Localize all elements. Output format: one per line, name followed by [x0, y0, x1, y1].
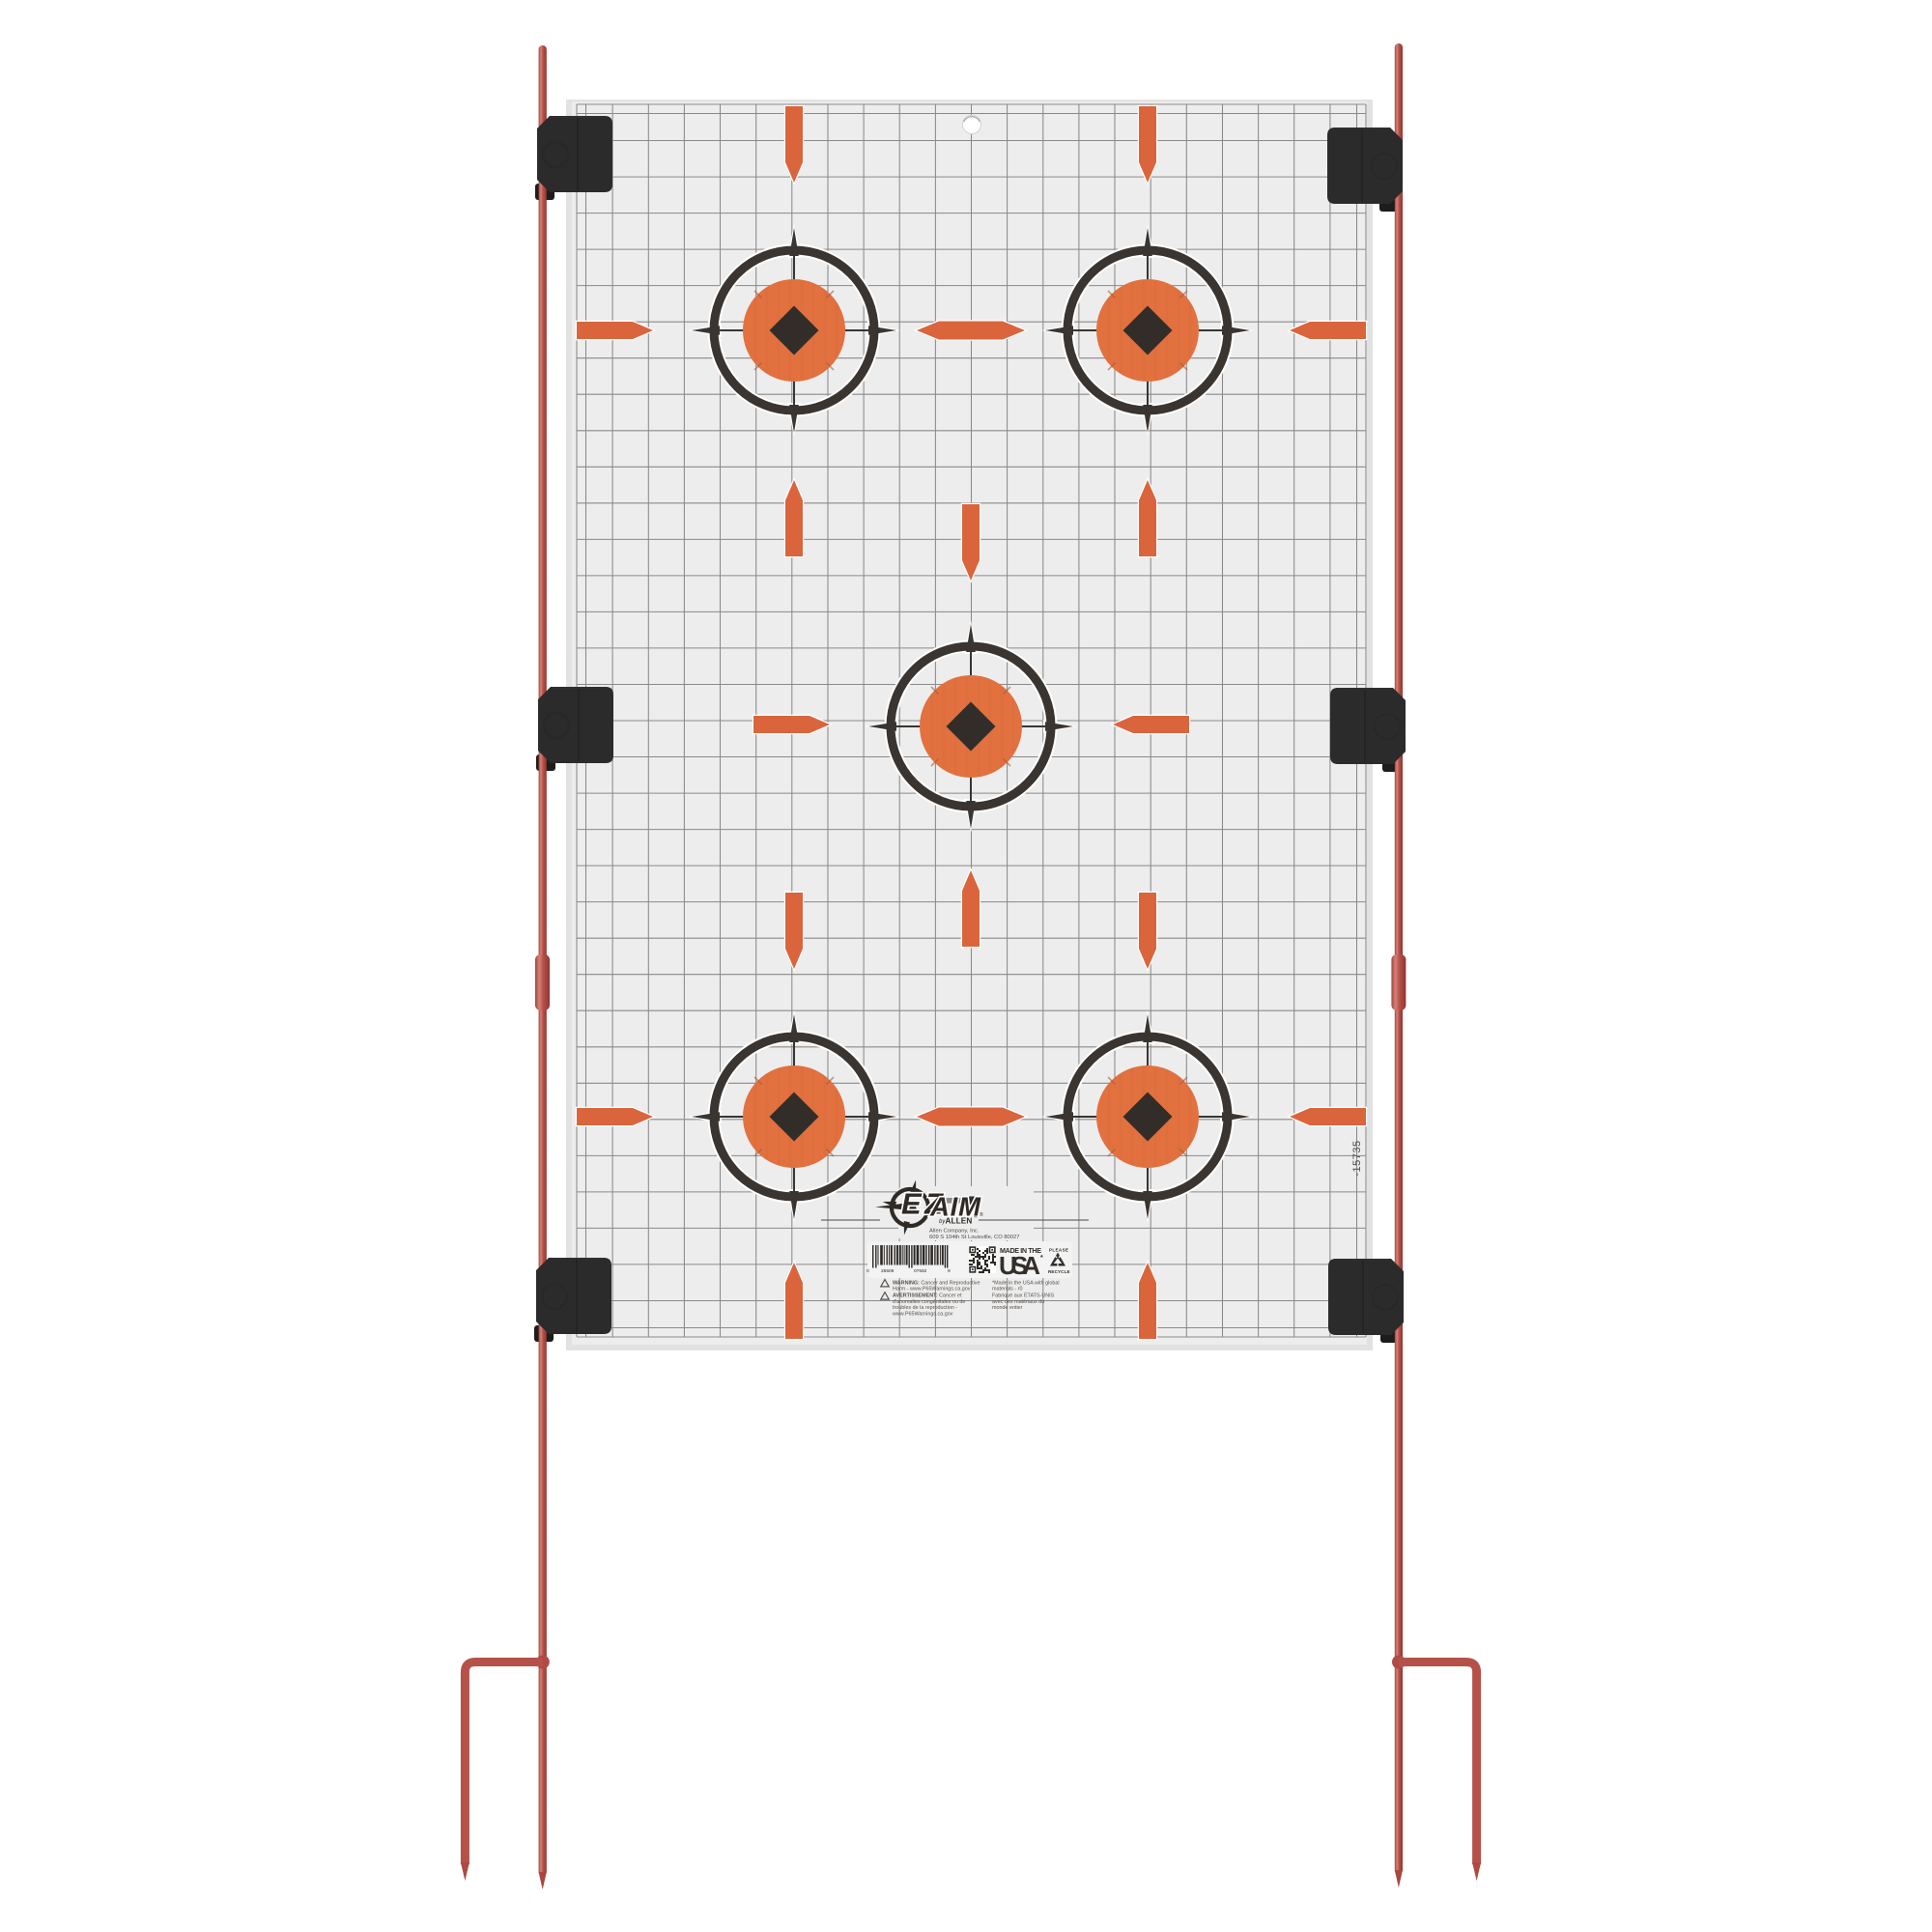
- svg-text:07592: 07592: [914, 1268, 927, 1274]
- svg-text:WARNING: Cancer and Reproducti: WARNING: Cancer and Reproductive: [893, 1281, 980, 1287]
- svg-text:-15735: -15735: [1351, 1140, 1363, 1176]
- svg-text:®: ®: [980, 1211, 983, 1218]
- svg-text:Fabriqué aux ÉTATS-UNIS: Fabriqué aux ÉTATS-UNIS: [992, 1293, 1055, 1299]
- svg-text:Harm - www.P65Warnings.ca.gov: Harm - www.P65Warnings.ca.gov: [893, 1287, 971, 1293]
- svg-text:609 S 104th St Louisville, CO: 609 S 104th St Louisville, CO 80027: [929, 1235, 1019, 1240]
- svg-text:PLEASE: PLEASE: [1049, 1248, 1068, 1253]
- svg-text:troubles de la reproduction -: troubles de la reproduction -: [893, 1305, 957, 1311]
- svg-text:0: 0: [867, 1268, 869, 1274]
- svg-text:AVERTISSEMENT: Cancer et: AVERTISSEMENT: Cancer et: [893, 1293, 962, 1299]
- svg-text:™: ™: [974, 1215, 978, 1220]
- svg-text:d'anomalies congénitales ou de: d'anomalies congénitales ou de: [893, 1299, 965, 1305]
- svg-text:avec des matériaux du: avec des matériaux du: [992, 1299, 1044, 1305]
- svg-text:USA: USA: [999, 1251, 1040, 1280]
- svg-text:monde entier: monde entier: [992, 1305, 1023, 1311]
- svg-text:materials - r0: materials - r0: [992, 1287, 1022, 1293]
- svg-text:26509: 26509: [881, 1268, 895, 1274]
- svg-text:*Made in the USA with global: *Made in the USA with global: [992, 1281, 1060, 1287]
- svg-text:RECYCLE: RECYCLE: [1048, 1269, 1070, 1274]
- svg-text:9: 9: [948, 1268, 951, 1274]
- svg-text:ALLEN: ALLEN: [946, 1216, 973, 1225]
- svg-text:www.P65Warnings.ca.gov: www.P65Warnings.ca.gov: [892, 1311, 953, 1317]
- svg-text:Allen Company, Inc.: Allen Company, Inc.: [929, 1229, 980, 1235]
- svg-text:*: *: [1040, 1255, 1043, 1262]
